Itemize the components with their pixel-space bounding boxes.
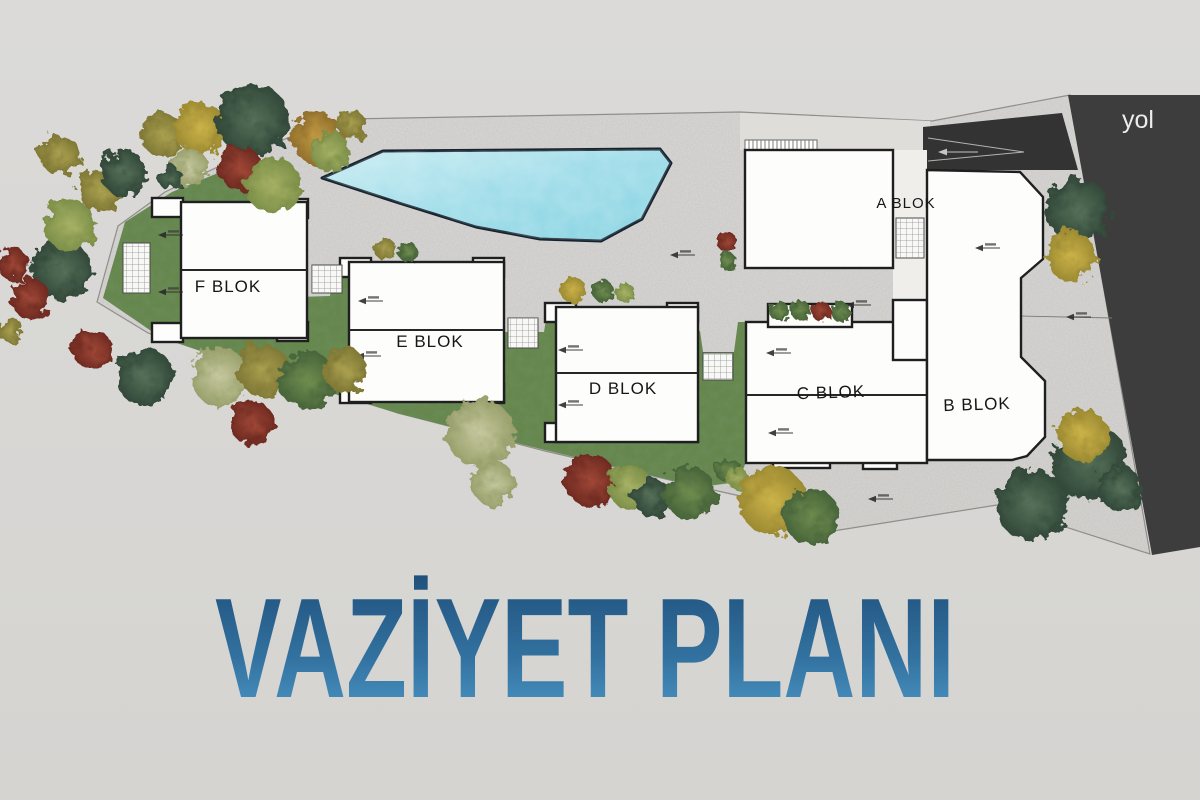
block-d: D BLOK <box>545 303 698 442</box>
bush-icon <box>717 232 737 252</box>
tree-icon <box>1046 231 1096 281</box>
bush-icon <box>374 238 396 260</box>
stairs-icon <box>896 218 924 258</box>
tree-icon <box>784 489 840 545</box>
tree-icon <box>10 278 50 318</box>
bush-icon <box>790 300 810 320</box>
block-f-label: F BLOK <box>195 277 261 296</box>
bush-icon <box>592 280 614 302</box>
tree-icon <box>1098 466 1142 510</box>
block-d-outline <box>556 307 698 442</box>
tree-icon <box>245 157 301 213</box>
tree-icon <box>73 330 113 370</box>
tree-icon <box>996 469 1068 541</box>
block-c-label: C BLOK <box>797 382 866 403</box>
tree-icon <box>471 461 515 505</box>
road-label: yol <box>1122 106 1154 134</box>
block-a-label: A BLOK <box>876 195 935 212</box>
block-a-outline <box>745 150 893 268</box>
bush-icon <box>718 252 736 270</box>
block-e: E BLOK <box>340 258 504 403</box>
site-plan-page: yol F BLOK E BLOK <box>0 0 1200 800</box>
bush-icon <box>831 302 851 322</box>
tree-icon <box>664 467 716 519</box>
block-b-label: B BLOK <box>943 394 1011 415</box>
tree-icon <box>40 135 80 175</box>
stairs-icon <box>508 318 538 348</box>
tree-icon <box>1057 409 1109 461</box>
block-b-wing <box>893 300 927 360</box>
tree-icon <box>446 399 514 467</box>
stairs-icon <box>312 265 342 293</box>
tree-icon <box>100 149 146 195</box>
stairs-icon <box>123 243 150 293</box>
bush-icon <box>615 283 635 303</box>
bush-icon <box>560 277 586 303</box>
tree-icon <box>116 348 174 406</box>
tree-icon <box>158 166 182 190</box>
bush-icon <box>398 242 418 262</box>
bush-icon <box>811 301 831 321</box>
bush-icon <box>769 301 789 321</box>
plan-title: VAZİYET PLANI <box>215 569 955 728</box>
site-plan-canvas: yol F BLOK E BLOK <box>0 0 1200 800</box>
tree-icon <box>230 401 274 445</box>
block-d-label: D BLOK <box>589 379 657 398</box>
stairs-icon <box>703 353 733 380</box>
block-e-label: E BLOK <box>396 332 463 351</box>
tree-icon <box>323 348 367 392</box>
tree-icon <box>310 132 350 172</box>
tree-icon <box>217 84 289 156</box>
tree-icon <box>338 110 366 138</box>
tree-icon <box>564 454 616 506</box>
